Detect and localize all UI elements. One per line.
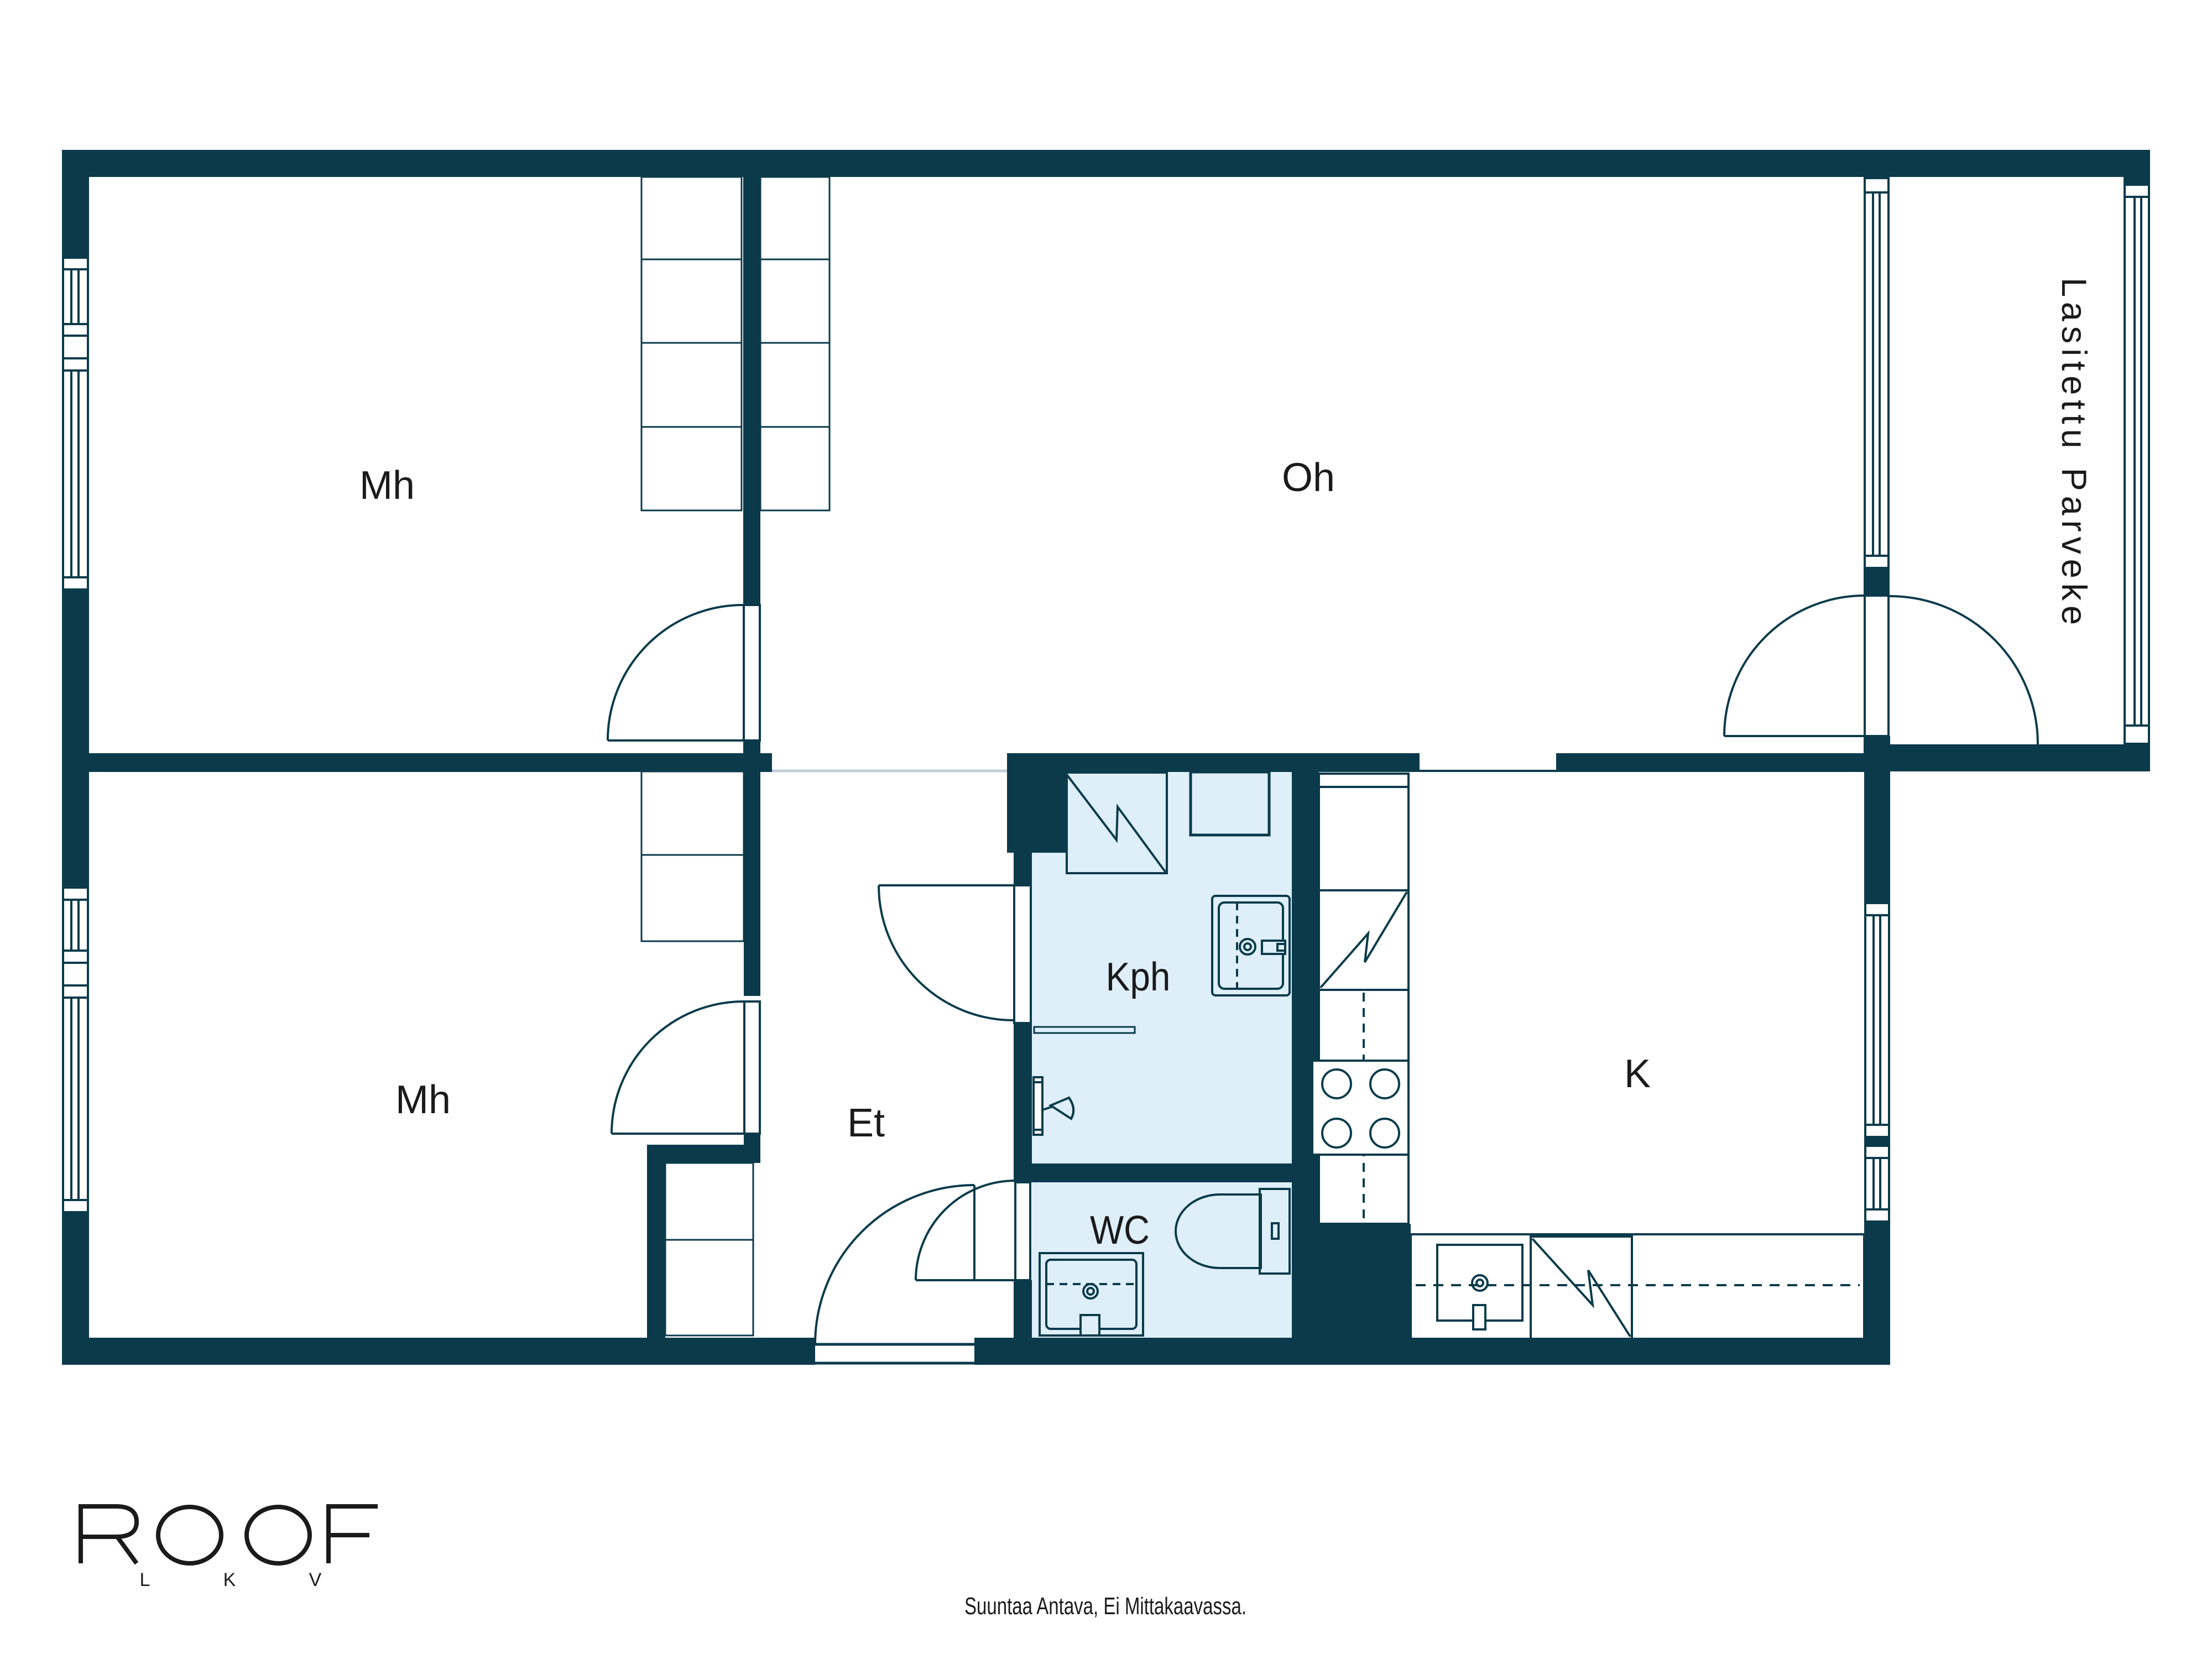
svg-text:Mh: Mh: [395, 1078, 451, 1122]
svg-text:K: K: [1624, 1052, 1651, 1096]
svg-text:V: V: [309, 1569, 322, 1590]
svg-text:WC: WC: [1090, 1208, 1150, 1253]
svg-text:K: K: [223, 1569, 236, 1590]
svg-text:Mh: Mh: [359, 463, 415, 508]
svg-text:L: L: [140, 1569, 150, 1590]
svg-text:Suuntaa Antava, Ei Mittakaavas: Suuntaa Antava, Ei Mittakaavassa.: [964, 1593, 1246, 1620]
svg-text:Et: Et: [847, 1101, 885, 1145]
svg-text:Oh: Oh: [1282, 456, 1335, 500]
svg-text:Kph: Kph: [1106, 955, 1171, 999]
